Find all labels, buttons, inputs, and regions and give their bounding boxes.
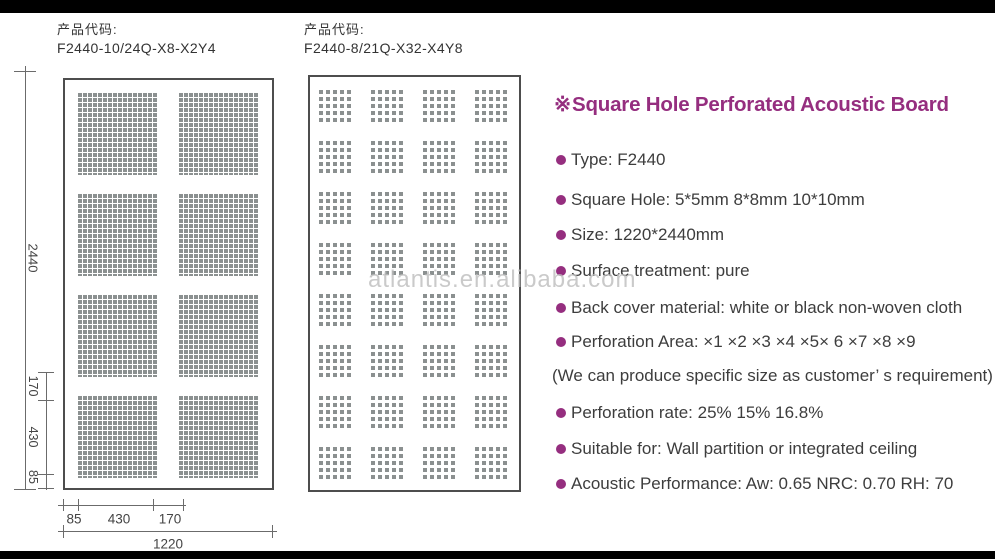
spec-text: Suitable for: Wall partition or integrat… bbox=[571, 439, 917, 459]
perforated-block bbox=[78, 295, 158, 377]
spec-text: Perforation rate: 25% 15% 16.8% bbox=[571, 403, 823, 423]
dim-total-width: 1220 bbox=[153, 537, 183, 552]
product-code-block-2: 产品代码: F2440-8/21Q-X32-X4Y8 bbox=[304, 23, 463, 56]
perforated-block bbox=[475, 345, 508, 378]
perforated-block bbox=[423, 141, 456, 174]
dim-bottom-170: 170 bbox=[159, 512, 182, 527]
spec-text: Perforation Area: ×1 ×2 ×3 ×4 ×5× 6 ×7 ×… bbox=[571, 332, 916, 352]
dim-tick bbox=[153, 499, 154, 511]
board-drawing-1 bbox=[63, 78, 274, 490]
perforated-block bbox=[423, 396, 456, 429]
perforated-block bbox=[319, 90, 352, 123]
bottom-black-bar bbox=[0, 551, 995, 559]
bullet-icon bbox=[556, 195, 566, 205]
spec-row-back-cover: Back cover material: white or black non-… bbox=[556, 297, 962, 319]
dim-bottom-85: 85 bbox=[66, 512, 81, 527]
spec-text: Square Hole: 5*5mm 8*8mm 10*10mm bbox=[571, 190, 865, 210]
spec-row-type: Type: F2440 bbox=[556, 149, 666, 171]
dim-seg-85: 85 bbox=[26, 470, 40, 484]
spec-text: Back cover material: white or black non-… bbox=[571, 298, 962, 318]
perforated-block bbox=[423, 447, 456, 480]
dim-tick bbox=[78, 499, 79, 511]
perforated-block bbox=[319, 192, 352, 225]
perforated-block bbox=[78, 194, 158, 276]
dim-bottom-430: 430 bbox=[108, 512, 131, 527]
perforated-block bbox=[319, 345, 352, 378]
product-code-value-2: F2440-8/21Q-X32-X4Y8 bbox=[304, 40, 463, 56]
product-code-value-1: F2440-10/24Q-X8-X2Y4 bbox=[57, 40, 216, 56]
page-title-text: Square Hole Perforated Acoustic Board bbox=[572, 93, 949, 116]
perforated-block bbox=[475, 90, 508, 123]
bullet-icon bbox=[556, 230, 566, 240]
bullet-icon bbox=[556, 479, 566, 489]
dim-tick bbox=[14, 71, 36, 72]
product-code-label-1: 产品代码: bbox=[57, 23, 216, 38]
dim-tick bbox=[38, 372, 54, 373]
perforated-block bbox=[423, 294, 456, 327]
dim-tick bbox=[272, 525, 273, 538]
dim-tick bbox=[38, 400, 54, 401]
spec-text: Size: 1220*2440mm bbox=[571, 225, 724, 245]
dim-tick bbox=[63, 525, 64, 538]
product-code-label-2: 产品代码: bbox=[304, 23, 463, 38]
perforated-block bbox=[319, 447, 352, 480]
spec-row-suitable-for: Suitable for: Wall partition or integrat… bbox=[556, 438, 917, 460]
dim-tick bbox=[38, 474, 54, 475]
perforated-block bbox=[319, 243, 352, 276]
perforated-block bbox=[371, 90, 404, 123]
spec-row-perforation-rate: Perforation rate: 25% 15% 16.8% bbox=[556, 402, 823, 424]
dim-line-left-segments bbox=[46, 372, 47, 490]
perforated-block bbox=[179, 396, 259, 478]
perforated-block bbox=[371, 396, 404, 429]
perforated-block bbox=[371, 447, 404, 480]
product-spec-sheet: 产品代码: F2440-10/24Q-X8-X2Y4 产品代码: F2440-8… bbox=[0, 0, 995, 559]
spec-text: Type: F2440 bbox=[571, 150, 666, 170]
bullet-icon bbox=[556, 408, 566, 418]
bullet-icon bbox=[556, 303, 566, 313]
spec-row-custom-size-note: (We can produce specific size as custome… bbox=[552, 365, 993, 387]
perforated-block bbox=[78, 93, 158, 175]
perforated-block bbox=[319, 396, 352, 429]
spec-text: (We can produce specific size as custome… bbox=[552, 366, 993, 386]
perforated-block bbox=[423, 192, 456, 225]
watermark-text: atlantis.en.alibaba.com bbox=[368, 266, 636, 294]
perforated-block bbox=[423, 90, 456, 123]
bullet-icon bbox=[556, 444, 566, 454]
product-code-block-1: 产品代码: F2440-10/24Q-X8-X2Y4 bbox=[57, 23, 216, 56]
perforated-block bbox=[371, 345, 404, 378]
perforated-block bbox=[475, 447, 508, 480]
spec-row-size: Size: 1220*2440mm bbox=[556, 224, 724, 246]
dim-tick bbox=[183, 499, 184, 511]
reference-mark-icon: ※ bbox=[554, 93, 571, 116]
perforated-block bbox=[319, 294, 352, 327]
perforated-block bbox=[78, 396, 158, 478]
spec-row-square-hole: Square Hole: 5*5mm 8*8mm 10*10mm bbox=[556, 189, 865, 211]
spec-row-acoustic-performance: Acoustic Performance: Aw: 0.65 NRC: 0.70… bbox=[556, 473, 953, 495]
perforated-block bbox=[475, 294, 508, 327]
dim-seg-430: 430 bbox=[26, 427, 40, 448]
perforated-block bbox=[475, 141, 508, 174]
bullet-icon bbox=[556, 155, 566, 165]
spec-text: Acoustic Performance: Aw: 0.65 NRC: 0.70… bbox=[571, 474, 953, 494]
perforation-grid-1 bbox=[65, 80, 272, 478]
perforated-block bbox=[179, 295, 259, 377]
perforated-block bbox=[423, 345, 456, 378]
perforated-block bbox=[371, 141, 404, 174]
dim-total-height: 2440 bbox=[26, 244, 41, 273]
spec-row-perforation-area: Perforation Area: ×1 ×2 ×3 ×4 ×5× 6 ×7 ×… bbox=[556, 331, 916, 353]
bullet-icon bbox=[556, 337, 566, 347]
page-title: ※Square Hole Perforated Acoustic Board bbox=[554, 92, 949, 117]
dim-tick bbox=[63, 499, 64, 511]
dim-tick bbox=[14, 489, 36, 490]
perforated-block bbox=[179, 194, 259, 276]
dim-seg-170: 170 bbox=[26, 376, 40, 397]
perforated-block bbox=[371, 294, 404, 327]
perforated-block bbox=[475, 192, 508, 225]
perforated-block bbox=[319, 141, 352, 174]
perforated-block bbox=[475, 396, 508, 429]
top-black-bar bbox=[0, 0, 995, 13]
perforated-block bbox=[179, 93, 259, 175]
dim-line-total-width bbox=[58, 531, 277, 532]
perforated-block bbox=[371, 192, 404, 225]
dim-tick bbox=[38, 488, 54, 489]
